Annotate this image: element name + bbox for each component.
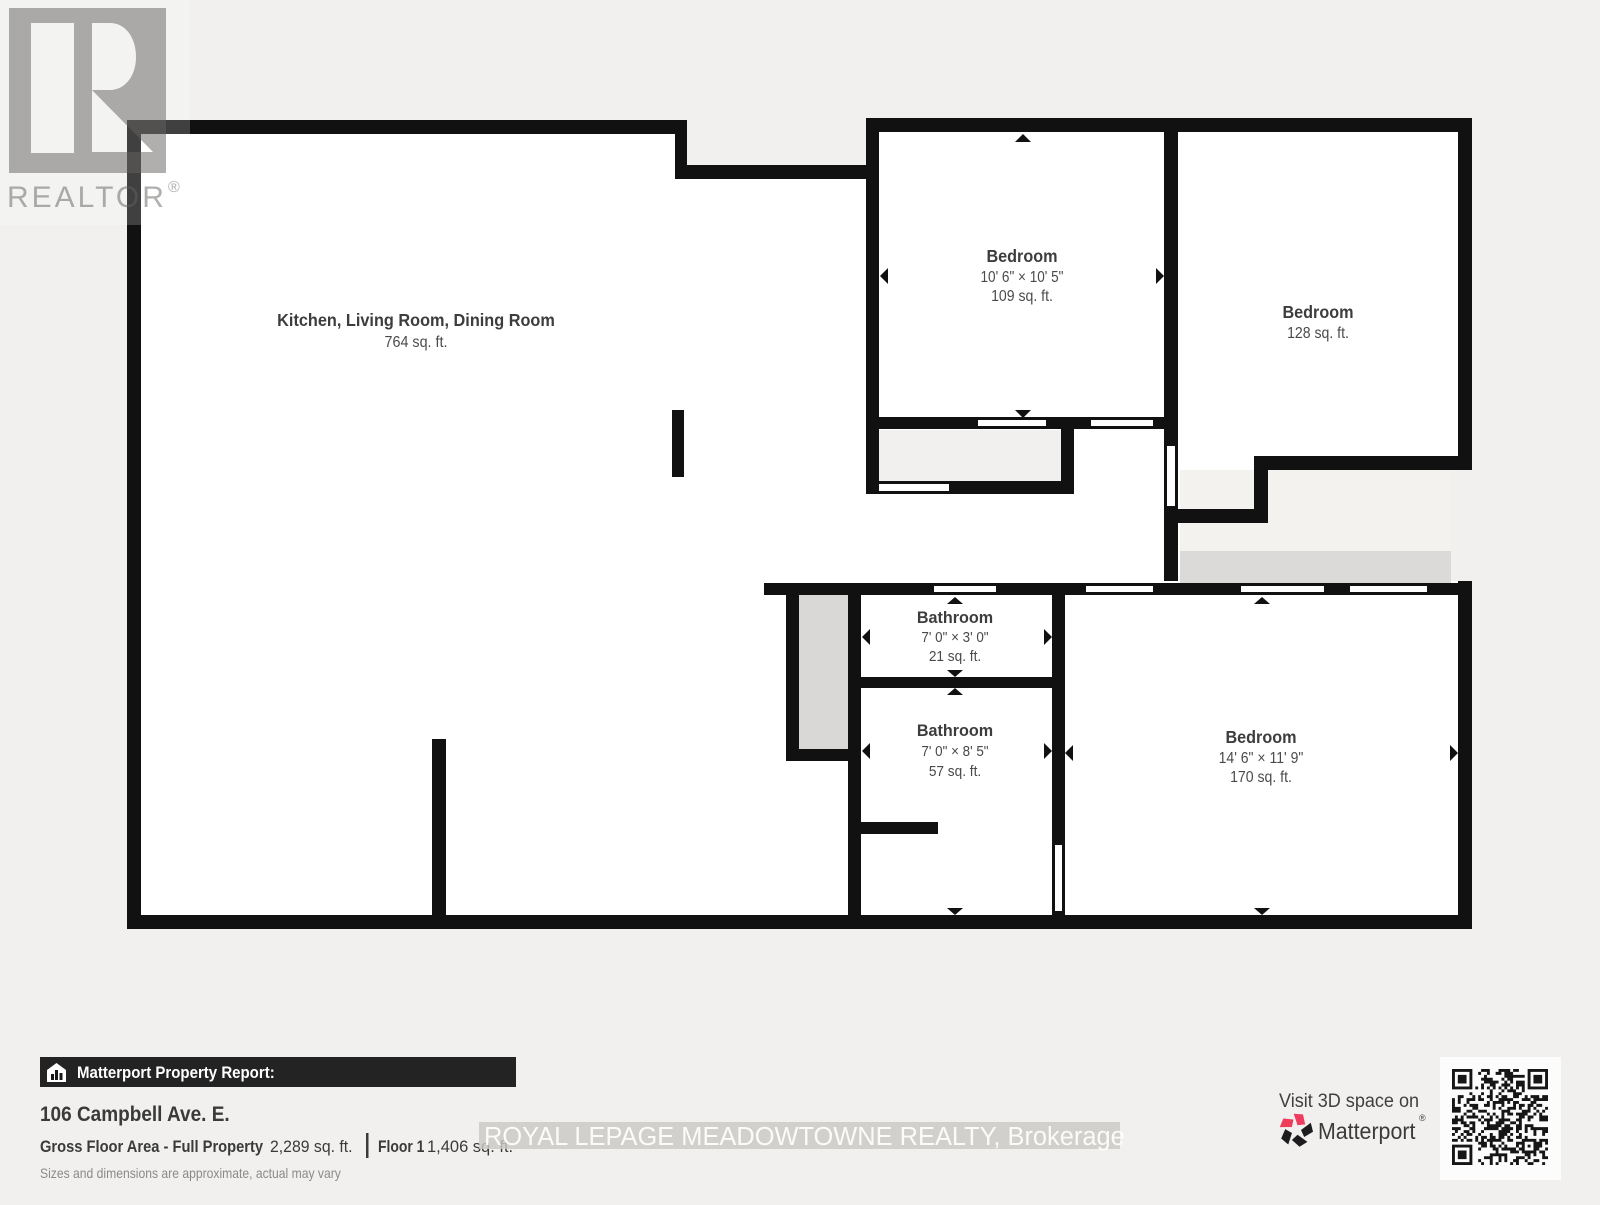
svg-text:Visit 3D space on: Visit 3D space on [1279,1090,1419,1112]
svg-text:Sizes and dimensions are appro: Sizes and dimensions are approximate, ac… [40,1165,341,1181]
svg-text:14' 6" × 11' 9": 14' 6" × 11' 9" [1219,750,1304,767]
svg-text:Matterport: Matterport [1318,1118,1415,1144]
svg-text:170 sq. ft.: 170 sq. ft. [1230,769,1292,786]
svg-text:7' 0" × 3' 0": 7' 0" × 3' 0" [921,629,988,646]
svg-text:21 sq. ft.: 21 sq. ft. [929,648,981,665]
svg-text:764 sq. ft.: 764 sq. ft. [385,334,448,352]
svg-text:10' 6" × 10' 5": 10' 6" × 10' 5" [981,269,1064,286]
svg-text:128 sq. ft.: 128 sq. ft. [1287,325,1349,342]
svg-text:7' 0" × 8' 5": 7' 0" × 8' 5" [921,743,988,760]
svg-text:Kitchen, Living Room, Dining R: Kitchen, Living Room, Dining Room [277,309,555,330]
svg-text:Gross Floor Area - Full Proper: Gross Floor Area - Full Property [40,1138,263,1156]
svg-text:Bathroom: Bathroom [917,608,993,627]
svg-text:Bedroom: Bedroom [1225,727,1296,747]
svg-text:57 sq. ft.: 57 sq. ft. [929,763,981,780]
svg-text:ROYAL LEPAGE MEADOWTOWNE REALT: ROYAL LEPAGE MEADOWTOWNE REALTY, Brokera… [484,1123,1125,1151]
svg-text:Floor 1: Floor 1 [378,1138,425,1157]
svg-text:2,289 sq. ft.: 2,289 sq. ft. [270,1138,353,1157]
svg-text:106 Campbell Ave. E.: 106 Campbell Ave. E. [40,1103,230,1126]
svg-text:Bathroom: Bathroom [917,721,993,740]
svg-text:REALTOR: REALTOR [7,181,167,214]
svg-text:®: ® [168,179,180,196]
svg-text:Bedroom: Bedroom [986,246,1057,266]
svg-text:Bedroom: Bedroom [1282,302,1353,322]
svg-text:Matterport Property Report:: Matterport Property Report: [77,1063,275,1082]
svg-text:109 sq. ft.: 109 sq. ft. [991,288,1053,305]
svg-text:®: ® [1419,1113,1426,1123]
